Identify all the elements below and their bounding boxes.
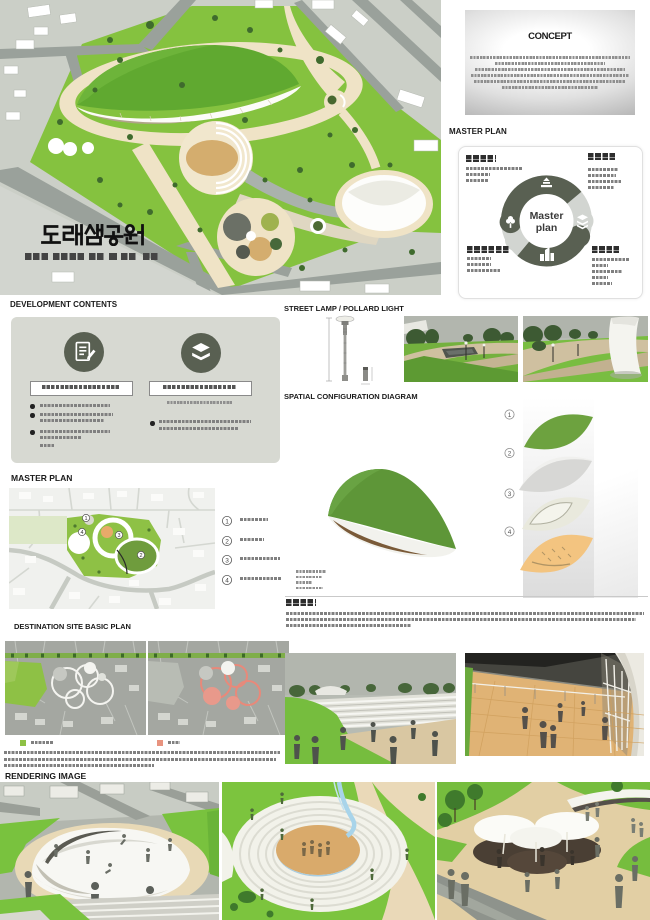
svg-text:2: 2 (225, 539, 229, 546)
svg-text:1: 1 (508, 412, 512, 419)
svg-text:plan: plan (536, 222, 558, 234)
svg-text:1: 1 (84, 516, 87, 522)
svg-text:3: 3 (508, 491, 512, 498)
svg-text:3: 3 (117, 533, 120, 539)
svg-text:3: 3 (225, 558, 229, 565)
svg-text:Master: Master (530, 210, 564, 222)
svg-text:4: 4 (508, 529, 512, 536)
svg-text:4: 4 (225, 578, 229, 585)
svg-text:2: 2 (139, 553, 142, 559)
svg-text:4: 4 (80, 530, 83, 536)
svg-text:2: 2 (508, 451, 512, 458)
svg-text:1: 1 (225, 519, 229, 526)
